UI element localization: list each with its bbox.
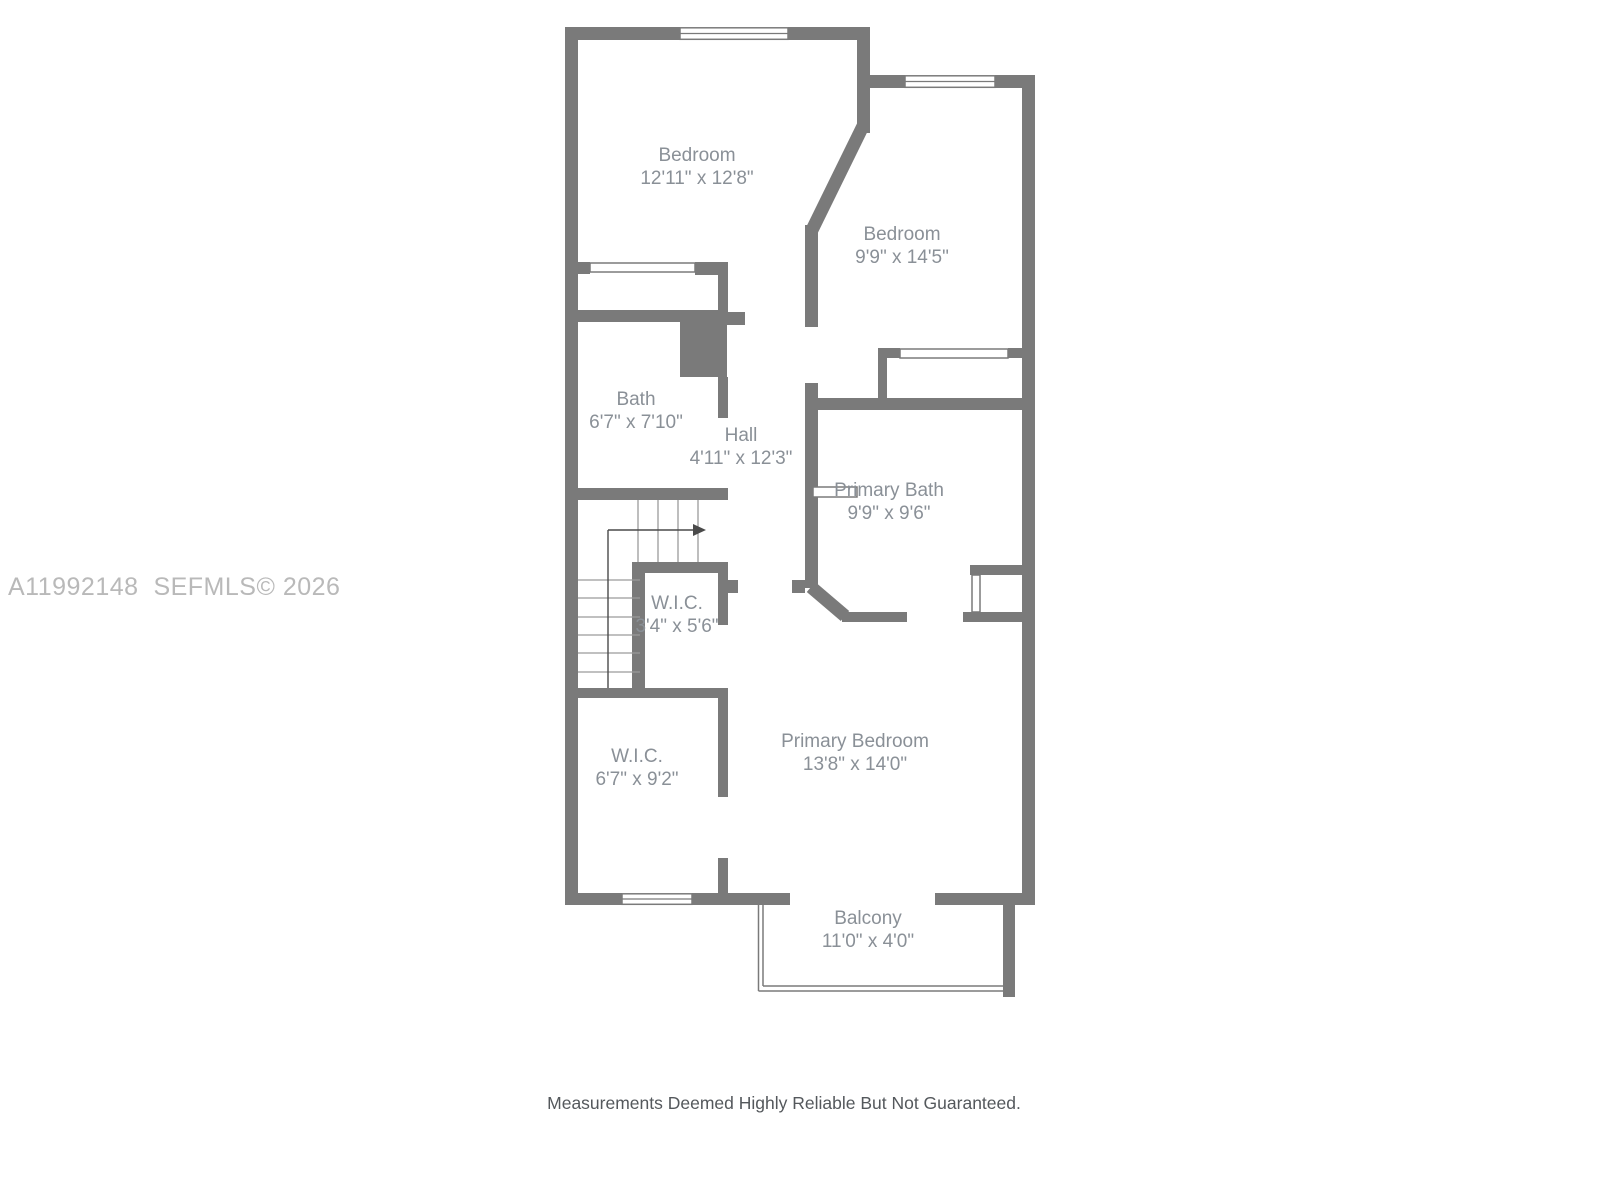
room-label-bedroom-1: Bedroom 12'11" x 12'8" [640, 144, 753, 190]
room-dims: 11'0" x 4'0" [822, 930, 914, 953]
room-name: Bedroom [640, 144, 753, 167]
room-label-bath: Bath 6'7" x 7'10" [589, 388, 683, 434]
room-dims: 12'11" x 12'8" [640, 167, 753, 190]
mls-watermark: A11992148 SEFMLS© 2026 [8, 573, 340, 602]
room-dims: 9'9" x 9'6" [834, 502, 944, 525]
floor-plan: Bedroom 12'11" x 12'8" Bedroom 9'9" x 14… [565, 27, 1037, 997]
room-dims: 13'8" x 14'0" [781, 753, 929, 776]
room-name: Bath [589, 388, 683, 411]
floor-plan-drawing [565, 27, 1037, 997]
room-label-primary-bath: Primary Bath 9'9" x 9'6" [834, 479, 944, 525]
room-label-wic-small: W.I.C. 3'4" x 5'6" [635, 592, 718, 638]
room-name: Balcony [822, 907, 914, 930]
room-label-hall: Hall 4'11" x 12'3" [690, 424, 793, 470]
room-label-primary-bedroom: Primary Bedroom 13'8" x 14'0" [781, 730, 929, 776]
room-name: W.I.C. [595, 745, 678, 768]
room-dims: 9'9" x 14'5" [855, 246, 949, 269]
room-label-wic-large: W.I.C. 6'7" x 9'2" [595, 745, 678, 791]
room-name: W.I.C. [635, 592, 718, 615]
room-label-bedroom-2: Bedroom 9'9" x 14'5" [855, 223, 949, 269]
room-dims: 6'7" x 9'2" [595, 768, 678, 791]
walls [565, 27, 1035, 997]
disclaimer-text: Measurements Deemed Highly Reliable But … [547, 1093, 1021, 1114]
room-dims: 6'7" x 7'10" [589, 411, 683, 434]
room-name: Bedroom [855, 223, 949, 246]
room-name: Primary Bedroom [781, 730, 929, 753]
room-dims: 3'4" x 5'6" [635, 615, 718, 638]
room-label-balcony: Balcony 11'0" x 4'0" [822, 907, 914, 953]
room-dims: 4'11" x 12'3" [690, 447, 793, 470]
room-name: Primary Bath [834, 479, 944, 502]
room-name: Hall [690, 424, 793, 447]
